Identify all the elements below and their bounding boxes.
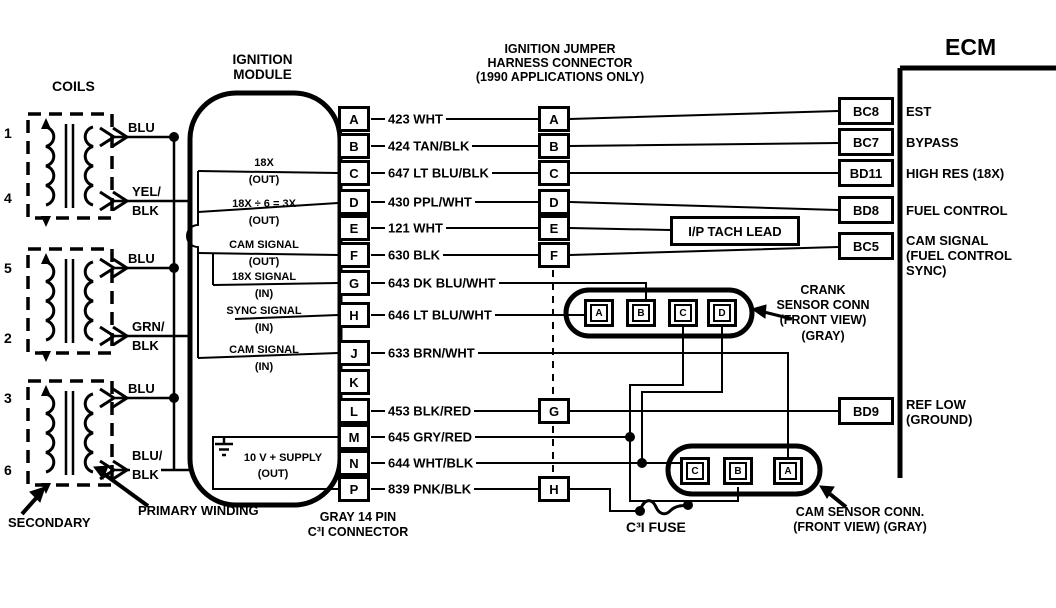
ecm-signal-label: CAM SIGNAL [906,233,988,248]
secondary-label: SECONDARY [8,515,91,530]
jumper-pin-b: B [538,133,570,159]
jumper-heading-line3: (1990 APPLICATIONS ONLY) [458,70,662,84]
module-supply-label: 10 V + SUPPLY [228,452,338,464]
module-signal-name: SYNC SIGNAL [198,305,330,317]
crank-sensor-label-line3: (FRONT VIEW) [762,313,884,327]
ecm-pin-bd9: BD9 [838,397,894,425]
module-pin-l: L [338,398,370,424]
module-pin-f: F [338,242,370,268]
gray-connector-label-line1: GRAY 14 PIN [300,510,416,524]
module-pin-m: M [338,424,370,450]
jumper-pin-a: A [538,106,570,132]
module-signal-dir: (OUT) [198,256,330,268]
ip-tach-lead-box: I/P TACH LEAD [670,216,800,246]
coil-wire-color: YEL/ [130,184,163,199]
ecm-signal-label: REF LOW [906,397,966,412]
module-signal-dir: (IN) [198,288,330,300]
ecm-signal-label: EST [906,104,931,119]
wire-label: 423 WHT [385,112,446,127]
wire-label: 643 DK BLU/WHT [385,276,499,291]
module-pin-b: B [338,133,370,159]
ecm-signal-label: FUEL CONTROL [906,203,1008,218]
cam-pin-a: A [773,457,803,485]
gray-connector-label-line2: C³I CONNECTOR [300,525,416,539]
coil-number: 2 [4,330,12,346]
crank-pin-d: D [707,299,737,327]
wire-label: 630 BLK [385,248,443,263]
ecm-pin-bd11: BD11 [838,159,894,187]
crank-pin-a: A [584,299,614,327]
ecm-signal-label: BYPASS [906,135,959,150]
ecm-signal-label: HIGH RES (18X) [906,166,1004,181]
jumper-heading-line1: IGNITION JUMPER [458,42,662,56]
cam-pin-b: B [723,457,753,485]
jumper-pin-e: E [538,215,570,241]
wiring-diagram: COILS IGNITION MODULE IGNITION JUMPER HA… [0,0,1056,608]
coil-number: 1 [4,125,12,141]
module-pin-e: E [338,215,370,241]
coil-wire-color: BLU [126,120,157,135]
cam-sensor-label-line2: (FRONT VIEW) (GRAY) [775,520,945,534]
ecm-signal-label: (FUEL CONTROL [906,248,1012,263]
crank-sensor-label-line2: SENSOR CONN [762,298,884,312]
winding-direction-arrows [41,118,51,494]
coil-number: 4 [4,190,12,206]
crank-pin-c: C [668,299,698,327]
jumper-pin-f: F [538,242,570,268]
wire-label: 646 LT BLU/WHT [385,308,495,323]
wire-label: 430 PPL/WHT [385,195,475,210]
ecm-pin-bd8: BD8 [838,196,894,224]
fuse-icon [640,501,688,514]
ignition-module-heading-line1: IGNITION [200,52,325,67]
coil-windings [46,124,93,475]
module-pin-g: G [338,270,370,296]
coil-wire-color: BLU [126,381,157,396]
wire-label: 644 WHT/BLK [385,456,476,471]
coil-wire-color: BLK [130,338,161,353]
coil-number: 3 [4,390,12,406]
coil-number: 6 [4,462,12,478]
ecm-heading: ECM [945,34,996,61]
cam-sensor-label-line1: CAM SENSOR CONN. [775,505,945,519]
module-signal-dir: (IN) [198,361,330,373]
ecm-pin-bc7: BC7 [838,128,894,156]
coils-heading: COILS [52,78,95,94]
ecm-signal-label: (GROUND) [906,412,972,427]
module-pin-j: J [338,340,370,366]
module-pin-h: H [338,302,370,328]
wire-label: 645 GRY/RED [385,430,475,445]
wire-label: 647 LT BLU/BLK [385,166,492,181]
ignition-module-heading-line2: MODULE [200,67,325,82]
wire-label: 633 BRN/WHT [385,346,478,361]
module-signal-dir: (IN) [198,322,330,334]
module-pin-a: A [338,106,370,132]
wire-label: 453 BLK/RED [385,404,474,419]
crank-sensor-label-line1: CRANK [762,283,884,297]
module-pin-c: C [338,160,370,186]
module-signal-name: CAM SIGNAL [198,344,330,356]
coil-wire-color: GRN/ [130,319,167,334]
module-signal-name: 18X [198,157,330,169]
module-pin-p: P [338,476,370,502]
module-pin-d: D [338,189,370,215]
jumper-pin-c: C [538,160,570,186]
module-supply-dir: (OUT) [228,468,318,480]
cam-pin-c: C [680,457,710,485]
module-signal-name: 18X ÷ 6 = 3X [198,198,330,210]
wire-label: 839 PNK/BLK [385,482,474,497]
ecm-pin-bc5: BC5 [838,232,894,260]
wire-label: 424 TAN/BLK [385,139,472,154]
coil-wire-color: BLK [130,203,161,218]
ecm-pin-bc8: BC8 [838,97,894,125]
crank-pin-b: B [626,299,656,327]
coil-wire-color: BLK [130,467,161,482]
coil-pack-outlines [28,114,112,485]
jumper-pin-g: G [538,398,570,424]
coil-wire-color: BLU [126,251,157,266]
coil-number: 5 [4,260,12,276]
module-pin-n: N [338,450,370,476]
primary-winding-label: PRIMARY WINDING [138,503,259,518]
jumper-heading-line2: HARNESS CONNECTOR [458,56,662,70]
module-signal-name: CAM SIGNAL [198,239,330,251]
module-signal-dir: (OUT) [198,174,330,186]
jumper-pin-h: H [538,476,570,502]
module-signal-name: 18X SIGNAL [198,271,330,283]
coil-wire-color: BLU/ [130,448,164,463]
jumper-pin-d: D [538,189,570,215]
crank-sensor-label-line4: (GRAY) [762,329,884,343]
module-pin-k: K [338,369,370,395]
ecm-signal-label: SYNC) [906,263,946,278]
wire-label: 121 WHT [385,221,446,236]
fuse-label: C³I FUSE [626,519,686,535]
module-signal-dir: (OUT) [198,215,330,227]
